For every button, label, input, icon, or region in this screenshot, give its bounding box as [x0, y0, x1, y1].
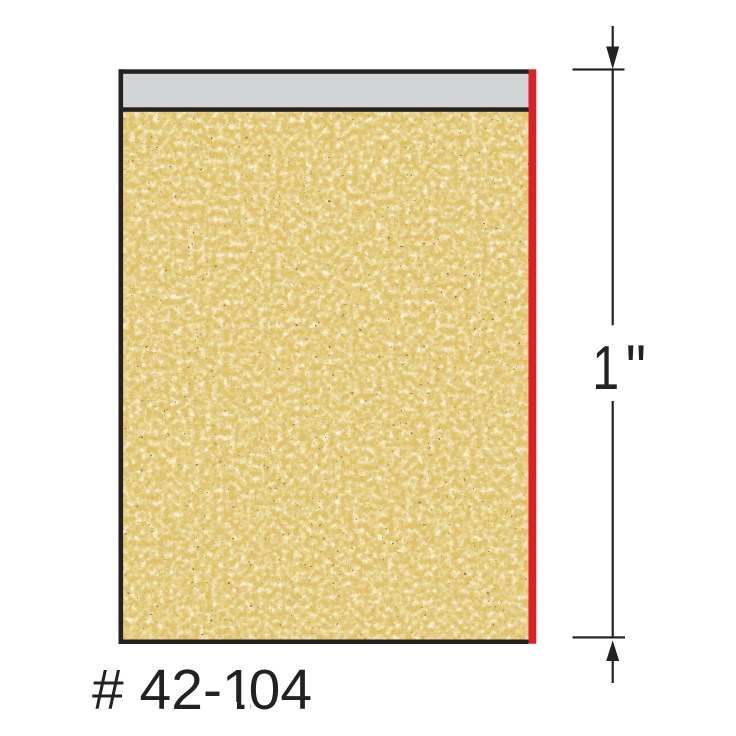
- svg-text:1: 1: [592, 333, 619, 402]
- svg-text:# 42-104: # 42-104: [92, 658, 312, 722]
- svg-text:": ": [626, 331, 646, 407]
